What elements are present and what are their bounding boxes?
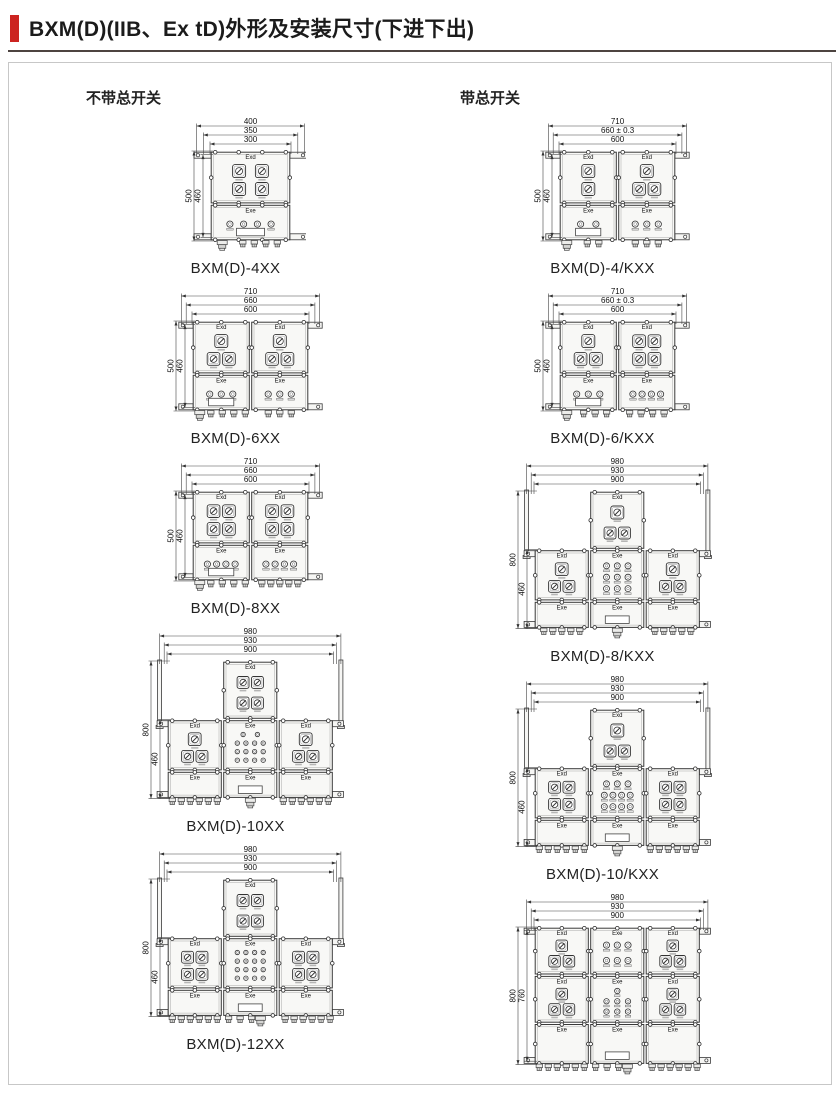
technical-drawing: ExdExdExeExe710660600500460 — [148, 284, 324, 429]
svg-text:460: 460 — [175, 529, 184, 543]
svg-text:Exd: Exd — [583, 325, 593, 331]
svg-text:Exd: Exd — [556, 554, 566, 560]
svg-text:Exd: Exd — [216, 495, 226, 501]
technical-drawing: ExdExdExeExdExeExeExe980930900800460 — [123, 842, 349, 1035]
svg-text:Exe: Exe — [274, 548, 285, 554]
svg-text:930: 930 — [243, 636, 257, 645]
svg-text:930: 930 — [610, 466, 624, 475]
figure: ExdExdExeExe710660600500460BXM(D)-8XX — [148, 454, 324, 617]
technical-drawing: ExdExeExdExdExeExdExeExeExe9809309008007… — [490, 890, 716, 1083]
svg-text:Exe: Exe — [667, 1028, 678, 1034]
svg-text:Exe: Exe — [667, 823, 678, 829]
svg-text:350: 350 — [243, 126, 257, 135]
svg-text:Exd: Exd — [556, 979, 566, 985]
figure: ExdExdExeExdExeExeExe980930900800460BXM(… — [123, 624, 349, 835]
svg-text:930: 930 — [243, 854, 257, 863]
svg-text:500: 500 — [533, 359, 542, 373]
svg-text:500: 500 — [166, 359, 175, 373]
figure: ExdExdExeExdExeExeExe980930900800460BXM(… — [490, 454, 716, 665]
svg-text:300: 300 — [243, 135, 257, 144]
svg-text:980: 980 — [243, 845, 257, 854]
figure-list: ExdExdExeExe710660 ± 0.3600500460BXM(D)-… — [420, 114, 785, 1085]
figure-caption: BXM(D)-6XX — [191, 430, 281, 447]
svg-text:800: 800 — [141, 723, 150, 737]
svg-text:Exd: Exd — [245, 665, 255, 671]
svg-text:Exd: Exd — [245, 883, 255, 889]
svg-text:Exe: Exe — [667, 605, 678, 611]
svg-text:710: 710 — [243, 287, 257, 296]
figure-caption: BXM(D)-4XX — [191, 260, 281, 277]
svg-text:Exe: Exe — [612, 772, 623, 778]
column-with-main-switch: 带总开关 ExdExdExeExe710660 ± 0.3600500460BX… — [420, 63, 831, 1084]
svg-text:Exe: Exe — [556, 823, 567, 829]
technical-drawing: ExdExdExeExe710660 ± 0.3600500460 — [515, 114, 691, 259]
red-accent-bar — [10, 15, 19, 42]
svg-text:460: 460 — [542, 359, 551, 373]
svg-text:Exd: Exd — [641, 155, 651, 161]
svg-text:Exd: Exd — [300, 942, 310, 948]
figure-caption: BXM(D)-12XX — [186, 1036, 284, 1053]
svg-text:800: 800 — [508, 553, 517, 567]
svg-text:600: 600 — [243, 305, 257, 314]
svg-text:Exd: Exd — [667, 772, 677, 778]
figure-caption: BXM(D)-12/KXX — [546, 1084, 659, 1085]
svg-text:900: 900 — [243, 645, 257, 654]
svg-text:Exd: Exd — [189, 724, 199, 730]
column-header: 带总开关 — [460, 87, 831, 108]
technical-drawing: ExdExdExeExe710660600500460 — [148, 454, 324, 599]
svg-text:800: 800 — [508, 771, 517, 785]
svg-text:660 ± 0.3: 660 ± 0.3 — [600, 296, 634, 305]
svg-text:Exd: Exd — [245, 155, 255, 161]
technical-drawing: ExdExe400350300500460 — [166, 114, 306, 259]
svg-text:Exe: Exe — [612, 823, 623, 829]
svg-text:Exe: Exe — [583, 208, 594, 214]
figure: ExdExdExeExe710660 ± 0.3600500460BXM(D)-… — [515, 114, 691, 277]
figure: ExdExe400350300500460BXM(D)-4XX — [166, 114, 306, 277]
svg-text:Exd: Exd — [612, 713, 622, 719]
figure: ExdExdExeExdExeExeExe980930900800460BXM(… — [123, 842, 349, 1053]
svg-text:Exe: Exe — [556, 1028, 567, 1034]
svg-text:500: 500 — [184, 189, 193, 203]
svg-text:600: 600 — [610, 135, 624, 144]
svg-text:500: 500 — [166, 529, 175, 543]
svg-text:980: 980 — [610, 675, 624, 684]
svg-text:900: 900 — [243, 863, 257, 872]
figure-caption: BXM(D)-10XX — [186, 818, 284, 835]
svg-text:900: 900 — [610, 693, 624, 702]
svg-text:Exd: Exd — [189, 942, 199, 948]
svg-text:Exe: Exe — [245, 775, 256, 781]
figure: ExdExdExeExe710660600500460BXM(D)-6XX — [148, 284, 324, 447]
svg-text:460: 460 — [517, 800, 526, 814]
svg-text:Exe: Exe — [556, 605, 567, 611]
technical-drawing: ExdExdExeExdExeExeExe980930900800460 — [490, 454, 716, 647]
svg-text:710: 710 — [610, 287, 624, 296]
svg-text:Exe: Exe — [189, 993, 200, 999]
svg-text:400: 400 — [243, 117, 257, 126]
svg-text:660 ± 0.3: 660 ± 0.3 — [600, 126, 634, 135]
svg-text:Exd: Exd — [612, 495, 622, 501]
svg-text:980: 980 — [243, 627, 257, 636]
svg-text:Exe: Exe — [245, 942, 256, 948]
figure: ExdExdExeExdExeExeExe980930900800460BXM(… — [490, 672, 716, 883]
svg-text:Exe: Exe — [612, 931, 623, 937]
svg-text:Exe: Exe — [641, 378, 652, 384]
svg-text:Exe: Exe — [274, 378, 285, 384]
svg-text:Exe: Exe — [612, 554, 623, 560]
svg-text:460: 460 — [193, 189, 202, 203]
svg-text:Exe: Exe — [612, 605, 623, 611]
svg-text:Exd: Exd — [583, 155, 593, 161]
svg-text:900: 900 — [610, 911, 624, 920]
svg-text:Exe: Exe — [583, 378, 594, 384]
svg-text:980: 980 — [610, 457, 624, 466]
svg-text:Exd: Exd — [641, 325, 651, 331]
figure: ExdExeExdExdExeExdExeExeExe9809309008007… — [490, 890, 716, 1085]
column-without-main-switch: 不带总开关 ExdExe400350300500460BXM(D)-4XXExd… — [9, 63, 420, 1084]
svg-text:500: 500 — [533, 189, 542, 203]
svg-text:660: 660 — [243, 296, 257, 305]
column-header: 不带总开关 — [86, 87, 420, 108]
title-divider — [8, 50, 836, 52]
svg-text:600: 600 — [243, 475, 257, 484]
svg-text:Exd: Exd — [556, 931, 566, 937]
svg-text:460: 460 — [175, 359, 184, 373]
figure-list: ExdExe400350300500460BXM(D)-4XXExdExdExe… — [51, 114, 420, 1060]
svg-text:710: 710 — [243, 457, 257, 466]
figure: ExdExdExeExe710660 ± 0.3600500460BXM(D)-… — [515, 284, 691, 447]
svg-text:460: 460 — [542, 189, 551, 203]
content-frame: 不带总开关 ExdExe400350300500460BXM(D)-4XXExd… — [8, 62, 832, 1085]
svg-text:Exd: Exd — [274, 495, 284, 501]
svg-text:Exd: Exd — [667, 979, 677, 985]
svg-text:Exe: Exe — [216, 548, 227, 554]
svg-text:Exd: Exd — [556, 772, 566, 778]
svg-text:Exd: Exd — [274, 325, 284, 331]
svg-text:Exe: Exe — [245, 724, 256, 730]
svg-text:Exe: Exe — [612, 1028, 623, 1034]
svg-text:Exe: Exe — [300, 993, 311, 999]
svg-text:Exe: Exe — [300, 775, 311, 781]
svg-text:Exd: Exd — [216, 325, 226, 331]
figure-caption: BXM(D)-8/KXX — [550, 648, 654, 665]
svg-text:Exe: Exe — [245, 208, 256, 214]
technical-drawing: ExdExdExeExdExeExeExe980930900800460 — [123, 624, 349, 817]
svg-text:Exe: Exe — [245, 993, 256, 999]
svg-text:710: 710 — [610, 117, 624, 126]
svg-text:800: 800 — [141, 941, 150, 955]
svg-text:660: 660 — [243, 466, 257, 475]
figure-caption: BXM(D)-8XX — [191, 600, 281, 617]
svg-text:Exe: Exe — [189, 775, 200, 781]
svg-text:760: 760 — [517, 989, 526, 1003]
svg-text:460: 460 — [150, 970, 159, 984]
svg-text:800: 800 — [508, 989, 517, 1003]
figure-caption: BXM(D)-10/KXX — [546, 866, 659, 883]
svg-text:Exe: Exe — [641, 208, 652, 214]
svg-text:Exd: Exd — [667, 931, 677, 937]
svg-text:Exd: Exd — [300, 724, 310, 730]
figure-caption: BXM(D)-6/KXX — [550, 430, 654, 447]
svg-text:930: 930 — [610, 902, 624, 911]
technical-drawing: ExdExdExeExdExeExeExe980930900800460 — [490, 672, 716, 865]
svg-text:460: 460 — [150, 752, 159, 766]
svg-text:980: 980 — [610, 893, 624, 902]
page-header: BXM(D)(IIB、Ex tD)外形及安装尺寸(下进下出) — [0, 0, 840, 43]
svg-text:Exd: Exd — [667, 554, 677, 560]
page-title: BXM(D)(IIB、Ex tD)外形及安装尺寸(下进下出) — [29, 13, 474, 43]
svg-text:900: 900 — [610, 475, 624, 484]
svg-text:Exe: Exe — [216, 378, 227, 384]
svg-text:930: 930 — [610, 684, 624, 693]
svg-text:460: 460 — [517, 582, 526, 596]
svg-text:600: 600 — [610, 305, 624, 314]
figure-caption: BXM(D)-4/KXX — [550, 260, 654, 277]
technical-drawing: ExdExdExeExe710660 ± 0.3600500460 — [515, 284, 691, 429]
svg-text:Exe: Exe — [612, 979, 623, 985]
